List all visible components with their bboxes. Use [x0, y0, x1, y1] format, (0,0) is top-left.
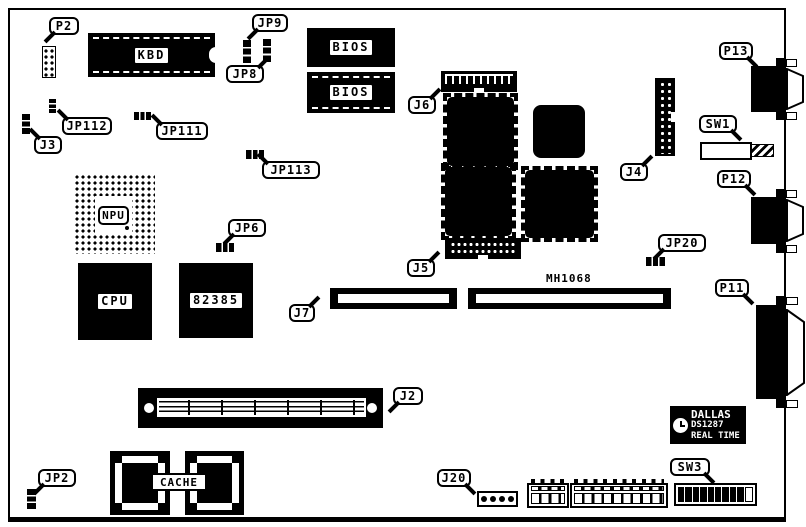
pin-dot	[499, 496, 505, 502]
switch-on	[685, 487, 691, 502]
callout-text: J6	[414, 98, 430, 112]
plcc-corner	[188, 454, 197, 463]
cache-label: CACHE	[151, 473, 207, 491]
chip-body	[445, 167, 512, 236]
mount-tab	[776, 399, 785, 408]
terminal-cells	[531, 493, 565, 504]
terminal-cells	[574, 493, 664, 504]
callout-text: JP9	[258, 16, 283, 30]
callout-p12: P12	[717, 170, 751, 188]
chip-cpu: CPU	[78, 263, 152, 340]
switch-on	[700, 487, 706, 502]
terminal-block-large	[570, 483, 668, 508]
plcc-corner	[158, 454, 167, 463]
switch-on	[722, 487, 728, 502]
jumper-jp111	[134, 112, 151, 120]
callout-jp8: JP8	[226, 65, 264, 83]
callout-j20: J20	[437, 469, 471, 487]
callout-text: J2	[400, 389, 416, 403]
terminal-block-small	[527, 483, 569, 508]
callout-p11: P11	[715, 279, 749, 297]
npu-label: NPU	[98, 206, 129, 225]
slot-j7-right	[468, 288, 671, 309]
callout-text: P13	[724, 44, 749, 58]
chip-dash-line	[93, 71, 210, 73]
callout-j3: J3	[34, 136, 62, 154]
callout-text: J4	[626, 165, 642, 179]
slot-j2	[138, 388, 383, 428]
chip-body	[447, 97, 514, 166]
callout-j5: J5	[407, 259, 435, 277]
chip-bios-bottom: BIOS	[307, 72, 395, 113]
bios-top-label: BIOS	[328, 38, 375, 57]
callout-jp6: JP6	[228, 219, 266, 237]
callout-text: JP113	[270, 163, 311, 177]
terminal-row	[531, 486, 565, 491]
port-p12-shell	[786, 199, 804, 242]
slot-opening	[338, 294, 449, 303]
callout-jp9: JP9	[252, 14, 288, 32]
motherboard-diagram: KBD BIOS BIOS CPU 82385 NPU	[0, 0, 806, 527]
callout-j6: J6	[408, 96, 436, 114]
callout-text: J7	[294, 306, 310, 320]
connector-notch	[474, 88, 484, 93]
callout-text: J3	[40, 138, 56, 152]
mount-tab	[786, 245, 797, 253]
connector-j6	[441, 71, 517, 92]
switch-off	[745, 487, 753, 502]
mount-tab	[776, 111, 785, 120]
npu-socket-center: NPU	[95, 196, 132, 234]
bios-bottom-label: BIOS	[328, 83, 375, 102]
mount-tab	[786, 190, 797, 198]
callout-jp112: JP112	[62, 117, 112, 135]
mount-tab	[786, 59, 797, 67]
mount-tab	[776, 58, 785, 67]
connector-j5	[445, 238, 521, 259]
bus-label-mh1068: MH1068	[546, 272, 592, 285]
pin-grid	[449, 241, 517, 256]
chip-bios-top: BIOS	[307, 28, 395, 67]
callout-j4: J4	[620, 163, 648, 181]
callout-j7: J7	[289, 304, 315, 322]
mount-tab	[786, 112, 797, 120]
chip-qfp-2	[441, 163, 516, 240]
plcc-corner	[188, 503, 197, 512]
connector-p2	[42, 46, 56, 78]
connector-notch	[478, 255, 488, 260]
switch-sw1-body	[700, 142, 752, 160]
82385-label: 82385	[188, 291, 244, 310]
port-p11	[756, 305, 786, 399]
chip-dash-line	[312, 107, 390, 109]
chip-notch	[209, 47, 216, 63]
plcc-corner	[113, 503, 122, 512]
callout-j2: J2	[393, 387, 423, 405]
callout-jp20: JP20	[658, 234, 706, 252]
pin-grid	[658, 80, 672, 154]
chip-dash-line	[93, 37, 210, 39]
callout-p13: P13	[719, 42, 753, 60]
chip-body	[525, 170, 594, 238]
connector-j4	[655, 78, 675, 156]
pin-row	[531, 479, 565, 485]
mount-tab	[786, 400, 798, 408]
clock-icon	[673, 418, 688, 433]
callout-text: J5	[413, 261, 429, 275]
kbd-label: KBD	[133, 46, 171, 65]
chip-82385: 82385	[179, 263, 253, 338]
callout-text: SW1	[706, 117, 731, 131]
callout-text: SW3	[678, 460, 703, 474]
port-p11-shell	[786, 309, 805, 396]
jumper-jp9	[243, 40, 251, 63]
chip-qfp-1	[443, 93, 518, 170]
port-p13	[751, 66, 786, 112]
connector-j20	[477, 491, 518, 507]
mounting-hole	[367, 403, 377, 413]
switch-on	[708, 487, 714, 502]
pin-row	[574, 479, 664, 485]
rtc-brand: DALLAS	[691, 409, 740, 420]
chip-kbd: KBD	[88, 33, 215, 77]
plcc-corner	[232, 454, 241, 463]
switch-on	[693, 487, 699, 502]
chip-square	[533, 105, 585, 158]
callout-text: JP8	[233, 67, 258, 81]
switch-sw1-shaft	[751, 144, 774, 157]
chip-dallas-rtc: DALLAS DS1287 REAL TIME	[670, 406, 746, 444]
jumper-jp112	[49, 99, 56, 113]
terminal-row	[574, 486, 664, 491]
callout-text: P11	[720, 281, 745, 295]
callout-sw3: SW3	[670, 458, 710, 476]
mount-tab	[776, 189, 785, 198]
mount-tab	[776, 244, 785, 253]
rtc-text: DALLAS DS1287 REAL TIME	[691, 409, 740, 441]
cpu-label: CPU	[96, 292, 134, 311]
mount-tab	[786, 297, 798, 305]
mounting-hole	[144, 403, 154, 413]
plcc-corner	[113, 454, 122, 463]
callout-text: JP112	[66, 119, 107, 133]
callout-jp113: JP113	[262, 161, 320, 179]
callout-jp2: JP2	[38, 469, 76, 487]
cache-label-text: CACHE	[160, 476, 198, 489]
slot-opening	[476, 294, 663, 303]
rtc-type: REAL TIME	[691, 432, 740, 441]
callout-jp111: JP111	[156, 122, 208, 140]
dip-switch-sw3	[674, 483, 757, 506]
switch-on	[737, 487, 743, 502]
pin1-dot	[125, 226, 129, 230]
pin-dot	[481, 496, 487, 502]
pin-comb	[445, 74, 513, 84]
switch-on	[678, 487, 684, 502]
port-p13-shell	[786, 68, 804, 110]
callout-text: P2	[56, 19, 72, 33]
pin-dot	[508, 496, 514, 502]
switch-on	[730, 487, 736, 502]
pin-dot	[490, 496, 496, 502]
port-p12	[751, 197, 786, 244]
callout-sw1: SW1	[699, 115, 737, 133]
callout-p2: P2	[49, 17, 79, 35]
callout-text: JP111	[161, 124, 202, 138]
switch-on	[715, 487, 721, 502]
callout-text: JP2	[45, 471, 70, 485]
chip-dash-line	[312, 76, 390, 78]
slot-j7-left	[330, 288, 457, 309]
callout-text: JP6	[235, 221, 260, 235]
connector-notch	[671, 112, 676, 122]
plcc-corner	[232, 503, 241, 512]
callout-text: JP20	[666, 236, 699, 250]
callout-text: P12	[722, 172, 747, 186]
slot-contacts	[157, 398, 366, 417]
rtc-part: DS1287	[691, 421, 740, 430]
mount-tab	[776, 296, 785, 305]
plcc-corner	[158, 503, 167, 512]
callout-text: J20	[442, 471, 467, 485]
chip-qfp-3	[521, 166, 598, 242]
